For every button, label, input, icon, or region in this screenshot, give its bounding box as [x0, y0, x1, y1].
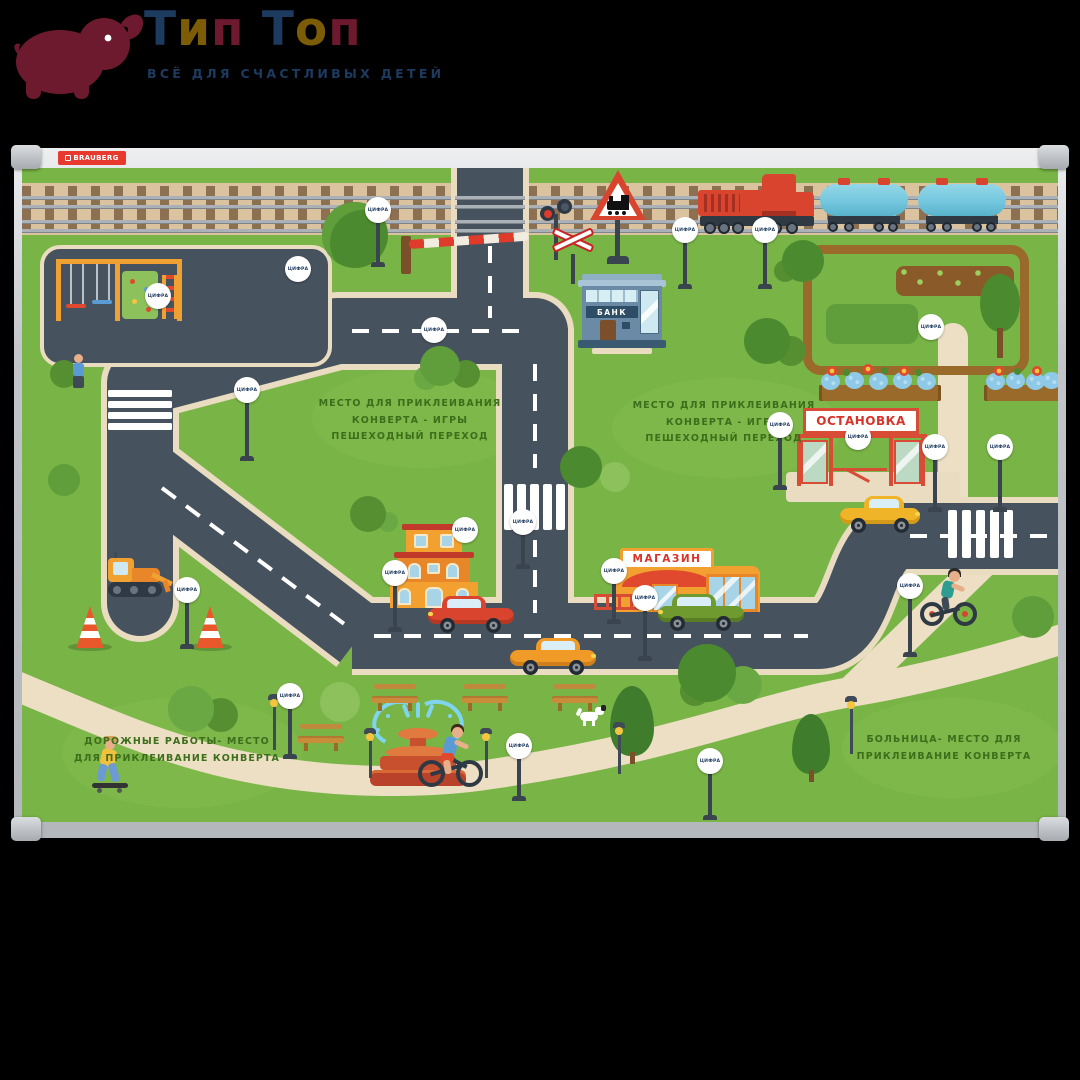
water-drop — [376, 728, 380, 732]
person-leg — [941, 597, 950, 611]
number-signpost: ЦИФРА — [506, 733, 532, 801]
number-marker: ЦИФРА — [382, 560, 408, 586]
flower-leaf — [1014, 368, 1021, 375]
car-headlight — [658, 610, 663, 614]
note-line: ПЕШЕХОДНЫЙ ПЕРЕХОД — [280, 429, 540, 446]
number-signpost: ЦИФРА — [697, 748, 723, 820]
flower-bloom — [869, 373, 888, 390]
car-wheel — [851, 518, 866, 533]
number-marker: ЦИФРА — [672, 217, 698, 243]
flower-leaf — [843, 369, 850, 376]
bulldozer — [106, 556, 172, 604]
barrier-arm — [409, 232, 529, 249]
climb-hold — [130, 279, 135, 284]
sign-base — [607, 256, 629, 264]
garden-plot: ЦИФРА — [803, 245, 1029, 375]
bench-seat — [462, 696, 508, 703]
sign-base — [283, 754, 297, 759]
number-signpost: ЦИФРА — [365, 197, 391, 267]
flower — [863, 364, 873, 374]
number-marker: ЦИФРА — [752, 217, 778, 243]
number-signpost: ЦИФРА — [382, 560, 408, 632]
track-wheel — [148, 586, 156, 594]
elephant-eye — [105, 35, 112, 42]
bush — [48, 464, 80, 496]
number-marker: ЦИФРА — [421, 317, 447, 343]
dog-leg — [583, 720, 586, 726]
train-wheel — [986, 222, 996, 232]
dog-ear — [601, 705, 606, 711]
number-signpost: ЦИФРА — [277, 683, 303, 759]
track-wheel — [130, 586, 138, 594]
tank-hatch — [878, 178, 890, 185]
frame-corner-cap — [11, 145, 41, 169]
cyclist — [418, 724, 484, 788]
frame-corner-cap — [1039, 145, 1069, 169]
bench-leg — [378, 703, 382, 711]
car-headlight — [428, 612, 433, 616]
number-signpost: ЦИФРА — [174, 577, 200, 649]
number-signpost: ЦИФРА — [510, 509, 536, 569]
number-marker: ЦИФРА — [697, 748, 723, 774]
car-wheel — [716, 616, 731, 631]
bank-base — [578, 340, 666, 348]
bench-back — [374, 684, 416, 689]
car-wheel — [486, 618, 501, 633]
envelope-note-right: МЕСТО ДЛЯ ПРИКЛЕИВАНИЯ КОНВЕРТА - ИГРЫ П… — [594, 398, 854, 448]
note-line: ДЛЯ ПРИКЛЕИВАНИЕ КОНВЕРТА — [52, 751, 302, 768]
sign-base — [928, 507, 942, 512]
dog-leg — [592, 720, 595, 726]
brand-letter: о — [295, 2, 328, 57]
dog — [578, 706, 606, 728]
water-drop — [386, 714, 390, 718]
tank-hatch — [936, 178, 948, 185]
flower-leaf — [881, 367, 888, 374]
signal-lens — [544, 210, 552, 218]
park-bench — [298, 724, 344, 750]
number-marker: ЦИФРА — [632, 585, 658, 611]
number-marker: ЦИФРА — [767, 412, 793, 438]
bench-leg — [408, 703, 412, 711]
sign-pole — [615, 220, 620, 258]
whiteboard-frame: BRAUBERG — [14, 148, 1066, 838]
number-signpost: ЦИФРА — [767, 412, 793, 490]
sign-base — [240, 456, 254, 461]
steam-loco-glyph — [605, 194, 633, 216]
number-marker: ЦИФРА — [897, 573, 923, 599]
sign-pole — [612, 584, 616, 619]
number-marker: ЦИФРА — [601, 558, 627, 584]
train-wheel — [786, 222, 798, 234]
sign-base — [678, 284, 692, 289]
sign-pole — [908, 599, 912, 652]
bench-back — [300, 724, 342, 729]
loco-nose — [796, 192, 814, 216]
bank-sign-band: БАНК — [586, 306, 638, 318]
number-marker: ЦИФРА — [234, 377, 260, 403]
train-wheel — [888, 222, 898, 232]
tank-barrel — [918, 184, 1006, 216]
flower-leaf — [915, 369, 922, 376]
train-wheel — [874, 222, 884, 232]
number-marker: ЦИФРА — [918, 314, 944, 340]
house-window — [414, 534, 428, 548]
person-legs — [73, 376, 84, 388]
sign-base — [516, 564, 530, 569]
sign-pole — [998, 460, 1002, 507]
water-drop — [434, 700, 438, 704]
brand-letter: Т — [144, 2, 177, 57]
person-torso — [73, 363, 84, 376]
lamp-bulb — [847, 701, 855, 709]
train-warning-sign — [590, 170, 646, 270]
number-signpost: ЦИФРА — [897, 573, 923, 657]
number-signpost: ЦИФРА — [672, 217, 698, 289]
city-play-mat: ЦИФРА — [22, 168, 1058, 822]
sign-pole — [185, 603, 189, 644]
sign-base — [758, 284, 772, 289]
brauberg-text: BRAUBERG — [73, 154, 118, 162]
bike-hub — [962, 611, 968, 617]
loco-grille — [704, 194, 740, 212]
note-line: КОНВЕРТА - ИГРЫ — [594, 415, 854, 432]
store-tagline: ВСЁ ДЛЯ СЧАСТЛИВЫХ ДЕТЕЙ — [147, 66, 444, 81]
sign-pole — [288, 709, 292, 754]
brauberg-icon — [65, 155, 71, 161]
rail — [455, 205, 525, 209]
train-wheel — [704, 222, 716, 234]
skateboard-wheel — [97, 788, 102, 793]
note-line: БОЛЬНИЦА- МЕСТО ДЛЯ — [834, 732, 1054, 749]
shop-sign: МАГАЗИН — [620, 548, 714, 570]
bank-building: БАНК — [578, 274, 666, 354]
railway-crossing — [455, 183, 525, 235]
sign-pole — [376, 223, 380, 262]
elephant-logo-icon — [12, 4, 144, 100]
swing-rope — [108, 264, 110, 300]
tank-wagon — [918, 178, 1006, 232]
sign-base — [903, 652, 917, 657]
bush-cluster — [560, 446, 602, 488]
tree-trunk — [630, 752, 635, 764]
sign-pole — [708, 774, 712, 815]
bush-cluster — [350, 496, 386, 532]
bench-leg — [468, 703, 472, 711]
number-signpost: ЦИФРА — [987, 434, 1013, 512]
frame-post — [56, 259, 61, 321]
brauberg-label: BRAUBERG — [58, 151, 126, 165]
brand-name: Тип Топ — [144, 2, 362, 57]
glyph-wheel — [622, 211, 626, 215]
car-wheel — [440, 618, 455, 633]
climb-hold — [132, 299, 137, 304]
number-marker: ЦИФРА — [987, 434, 1013, 460]
flower — [899, 366, 909, 376]
number-signpost: ЦИФРА — [632, 585, 658, 661]
brand-letter: п — [211, 2, 244, 57]
sign-pole — [933, 460, 937, 507]
brand-letter: Т — [262, 2, 295, 57]
flower — [994, 366, 1004, 376]
lamp-pole — [369, 741, 372, 778]
skateboard-wheel — [117, 788, 122, 793]
street-lamp — [364, 728, 376, 778]
number-marker: ЦИФРА — [145, 283, 171, 309]
swing-rope — [70, 264, 72, 304]
garden-tree-trunk — [997, 328, 1003, 358]
frame-post — [115, 259, 120, 321]
tank-hatch — [838, 178, 850, 185]
bench-back — [554, 684, 596, 689]
number-marker: ЦИФРА — [277, 683, 303, 709]
tree — [1012, 596, 1054, 638]
bush-cluster — [782, 240, 824, 282]
bench-leg — [304, 743, 308, 751]
tank-wagon — [820, 178, 908, 232]
glyph-cab — [621, 195, 629, 210]
note-line: ДОРОЖНЫЕ РАБОТЫ- МЕСТО — [52, 734, 302, 751]
bank-slot — [622, 322, 630, 329]
glyph-wheel — [615, 211, 619, 215]
bench-leg — [334, 743, 338, 751]
car-wheel — [670, 616, 685, 631]
lawn-patch — [826, 304, 918, 344]
bench-seat — [552, 696, 598, 703]
frame-corner-cap — [1039, 817, 1069, 841]
note-line: МЕСТО ДЛЯ ПРИКЛЕИВАНИЯ — [594, 398, 854, 415]
tree-trunk — [809, 770, 814, 782]
crossing-barrier — [401, 234, 533, 278]
car-headlight — [915, 512, 920, 516]
glyph-wheel — [608, 211, 612, 215]
park-bench — [462, 684, 508, 710]
car-headlight — [591, 654, 596, 658]
flower — [827, 366, 837, 376]
water-drop — [448, 714, 452, 718]
cone-body — [72, 606, 108, 648]
rail — [455, 196, 525, 200]
lamp-pole — [618, 735, 621, 774]
track-wheel — [113, 586, 121, 594]
climb-hold — [146, 307, 151, 312]
bush — [320, 682, 360, 722]
sign-pole — [683, 243, 687, 284]
sign-base — [388, 627, 402, 632]
car-red — [428, 596, 514, 632]
sign-base — [993, 507, 1007, 512]
train-wheel — [718, 222, 730, 234]
bush-cluster — [420, 346, 460, 386]
flower-planter — [984, 369, 1058, 405]
house-window — [446, 563, 459, 579]
dozer-cab-window — [113, 562, 128, 575]
lamp-bulb — [366, 733, 374, 741]
envelope-note-left: МЕСТО ДЛЯ ПРИКЛЕИВАНИЯ КОНВЕРТА - ИГРЫ П… — [280, 396, 540, 446]
sign-pole — [778, 438, 782, 485]
bank-steps — [592, 348, 652, 354]
bank-tall-window — [640, 290, 659, 334]
number-marker: ЦИФРА — [922, 434, 948, 460]
bench-leg — [498, 703, 502, 711]
flower-bloom — [1042, 372, 1058, 389]
sign-pole — [245, 403, 249, 456]
number-signpost: ЦИФРА — [752, 217, 778, 289]
swing-seat — [92, 300, 112, 304]
house-window — [408, 563, 421, 579]
frame-corner-cap — [11, 817, 41, 841]
number-marker: ЦИФРА — [174, 577, 200, 603]
cyclist — [920, 570, 978, 628]
bush-cluster — [744, 318, 790, 364]
sign-pole — [393, 586, 397, 627]
store-logo: Тип Топ ВСЁ ДЛЯ СЧАСТЛИВЫХ ДЕТЕЙ — [6, 0, 466, 104]
car-yellow — [840, 496, 920, 532]
sign-base — [773, 485, 787, 490]
tank-hatch — [976, 178, 988, 185]
sign-pole — [763, 243, 767, 284]
garden-tree — [980, 274, 1020, 332]
hospital-note: БОЛЬНИЦА- МЕСТО ДЛЯ ПРИКЛЕИВАНИЕ КОНВЕРТ… — [834, 732, 1054, 765]
shelter-glass — [894, 440, 921, 484]
lamp-bulb — [615, 727, 623, 735]
bank-door — [600, 320, 616, 340]
shelter-bench — [833, 468, 887, 471]
car-wheel — [569, 660, 584, 675]
car-wheel — [894, 518, 909, 533]
sign-pole — [517, 759, 521, 796]
car-green — [658, 594, 744, 630]
swing-rope — [96, 264, 98, 300]
train-wheel — [942, 222, 952, 232]
roadworks-note: ДОРОЖНЫЕ РАБОТЫ- МЕСТО ДЛЯ ПРИКЛЕИВАНИЕ … — [52, 734, 302, 767]
swing-rope — [82, 264, 84, 304]
note-line: МЕСТО ДЛЯ ПРИКЛЕИВАНИЯ — [280, 396, 540, 413]
sign-base — [607, 619, 621, 624]
house-window — [427, 563, 440, 574]
number-marker: ЦИФРА — [506, 733, 532, 759]
street-lamp — [613, 722, 625, 774]
lamp-pole — [485, 741, 488, 778]
swing-seat — [66, 304, 86, 308]
person-head — [74, 354, 83, 363]
number-marker: ЦИФРА — [285, 256, 311, 282]
number-marker: ЦИФРА — [510, 509, 536, 535]
traffic-cone — [72, 606, 108, 648]
glyph-chimney — [609, 196, 613, 202]
signal-lens — [561, 203, 569, 211]
rail — [455, 220, 525, 224]
flower — [1032, 366, 1042, 376]
sign-base — [512, 796, 526, 801]
bench-seat — [372, 696, 418, 703]
sign-base — [180, 644, 194, 649]
train-wheel — [844, 222, 854, 232]
sign-pole — [643, 611, 647, 656]
house-window — [440, 534, 454, 548]
sign-base — [703, 815, 717, 820]
tank-barrel — [820, 184, 908, 216]
note-line: ПЕШЕХОДНЫЙ ПЕРЕХОД — [594, 431, 854, 448]
sign-pole — [571, 254, 575, 284]
number-signpost: ЦИФРА — [234, 377, 260, 461]
note-line: ПРИКЛЕИВАНИЕ КОНВЕРТА — [834, 749, 1054, 766]
flower-bloom — [986, 373, 1005, 390]
number-marker: ЦИФРА — [452, 517, 478, 543]
train-wheel — [732, 222, 744, 234]
product-image: Тип Топ ВСЁ ДЛЯ СЧАСТЛИВЫХ ДЕТЕЙ BRAUBER… — [0, 0, 1080, 1080]
bench-back — [464, 684, 506, 689]
sign-pole — [521, 535, 525, 564]
bush-cluster — [168, 686, 214, 732]
person-head — [452, 727, 463, 738]
train-wheel — [972, 222, 982, 232]
person-head — [949, 571, 960, 582]
car-wheel — [523, 660, 538, 675]
tree-cluster — [678, 644, 736, 702]
sign-base — [638, 656, 652, 661]
pedestrian-boy — [70, 354, 86, 394]
train-wheel — [926, 222, 936, 232]
note-line: КОНВЕРТА - ИГРЫ — [280, 413, 540, 430]
brand-letter: и — [177, 2, 211, 57]
park-bench — [372, 684, 418, 710]
car-orange — [510, 638, 596, 674]
skateboard-deck — [92, 783, 128, 788]
shelter-post — [889, 434, 893, 486]
number-signpost: ЦИФРА — [922, 434, 948, 512]
train-wheel — [828, 222, 838, 232]
loco-cab — [762, 174, 796, 216]
number-signpost: ЦИФРА — [601, 558, 627, 624]
sign-base — [371, 262, 385, 267]
brand-letter: п — [328, 2, 361, 57]
bench-leg — [558, 703, 562, 711]
bench-seat — [298, 736, 344, 743]
number-marker: ЦИФРА — [365, 197, 391, 223]
bank-window-strip — [586, 290, 638, 302]
